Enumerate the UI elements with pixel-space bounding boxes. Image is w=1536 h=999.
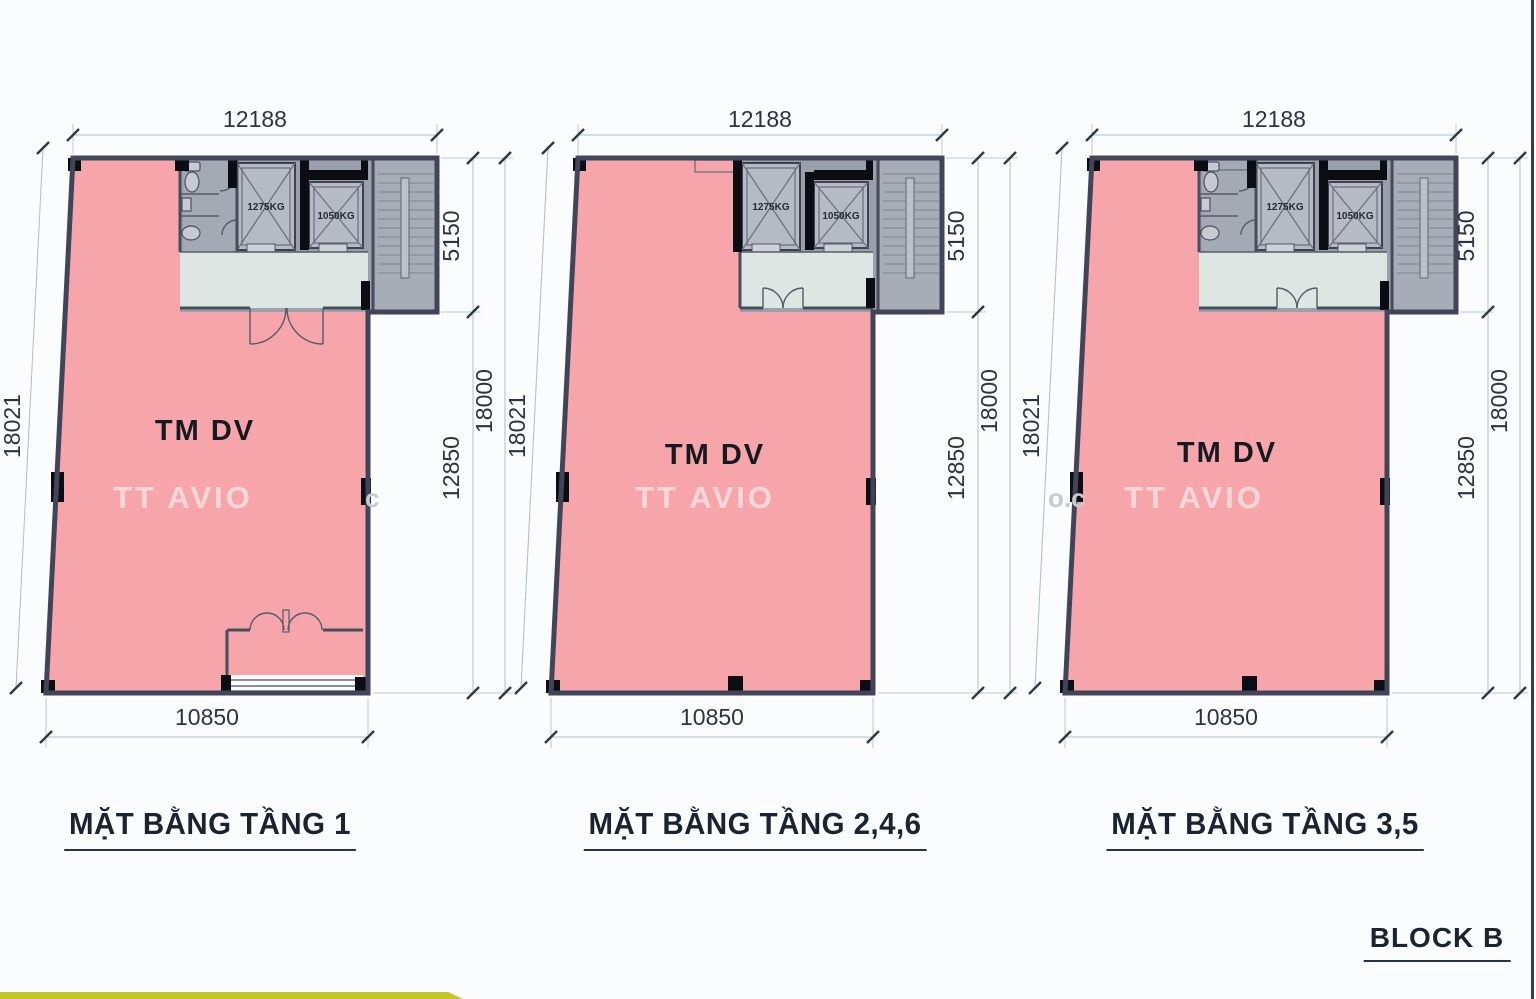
floor-plan-1: 1275KG 1050KG (0, 96, 520, 811)
block-label: BLOCK B (1364, 922, 1511, 962)
dim-right-lower: 12850 (438, 436, 464, 500)
plan-title-floor-2-4-6: MẶT BẰNG TẦNG 2,4,6 (584, 806, 927, 851)
dim-top: 12188 (728, 106, 792, 132)
watermark: TT AVIO (113, 480, 253, 515)
plan-title-floor-1: MẶT BẰNG TẦNG 1 (64, 806, 355, 851)
room-label: TM DV (155, 415, 255, 447)
dim-right-upper: 5150 (438, 210, 464, 261)
floor-plan-2-drawing: 1275KG 1050KG (480, 96, 1025, 811)
dim-bottom: 10850 (680, 704, 744, 730)
dim-right-outer: 18000 (1486, 369, 1512, 433)
floor-plan-3-5: 1275KG 1050KG (994, 96, 1536, 811)
dim-left: 18021 (0, 394, 25, 458)
bottom-accent-bar (0, 992, 463, 999)
watermark: TT AVIO (1124, 480, 1264, 515)
watermark-fragment: o.c (1048, 483, 1086, 514)
sheet-border (1531, 0, 1534, 999)
dim-right-upper: 5150 (1453, 210, 1479, 261)
elevator-2-label: 1050KG (1336, 211, 1373, 222)
elevator-2: 1050KG (309, 182, 363, 248)
elevator-1: 1275KG (742, 163, 800, 250)
elevator-2: 1050KG (814, 182, 868, 248)
elevator-2-label: 1050KG (822, 211, 859, 222)
floor-plan-sheet: 1275KG 1050KG (0, 0, 1536, 999)
floor-plan-1-drawing: 1275KG 1050KG (0, 96, 520, 811)
elevator-1: 1275KG (1256, 163, 1314, 250)
plan-title-floor-3-5: MẶT BẰNG TẦNG 3,5 (1106, 806, 1423, 851)
elevator-2: 1050KG (1328, 182, 1382, 248)
floor-plan-2-4-6: 1275KG 1050KG (480, 96, 1025, 811)
watermark: TT AVIO (635, 480, 775, 515)
dim-left: 18021 (504, 394, 530, 458)
dim-right-upper: 5150 (943, 210, 969, 261)
dim-top: 12188 (1242, 106, 1306, 132)
elevator-sill (1266, 244, 1294, 252)
room-label: TM DV (1177, 437, 1277, 469)
dim-bottom: 10850 (1194, 704, 1258, 730)
room-label: TM DV (665, 439, 765, 471)
elevator-sill (824, 244, 852, 252)
dim-bottom: 10850 (175, 704, 239, 730)
elevator-sill (247, 244, 275, 252)
elevator-sill (752, 244, 780, 252)
elevator-1-label: 1275KG (1266, 202, 1303, 213)
dim-top: 12188 (223, 106, 287, 132)
entrance-steps (227, 675, 363, 693)
elevator-sill (319, 244, 347, 252)
elevator-1: 1275KG (237, 163, 295, 250)
elevator-2-label: 1050KG (317, 211, 354, 222)
dim-left: 18021 (1018, 394, 1044, 458)
elevator-sill (1338, 244, 1366, 252)
elevator-1-label: 1275KG (247, 202, 284, 213)
dim-right-lower: 12850 (943, 436, 969, 500)
watermark-fragment: c (365, 483, 379, 514)
dim-right-lower: 12850 (1453, 436, 1479, 500)
elevator-1-label: 1275KG (752, 202, 789, 213)
floor-plan-3-drawing: 1275KG 1050KG (994, 96, 1536, 811)
